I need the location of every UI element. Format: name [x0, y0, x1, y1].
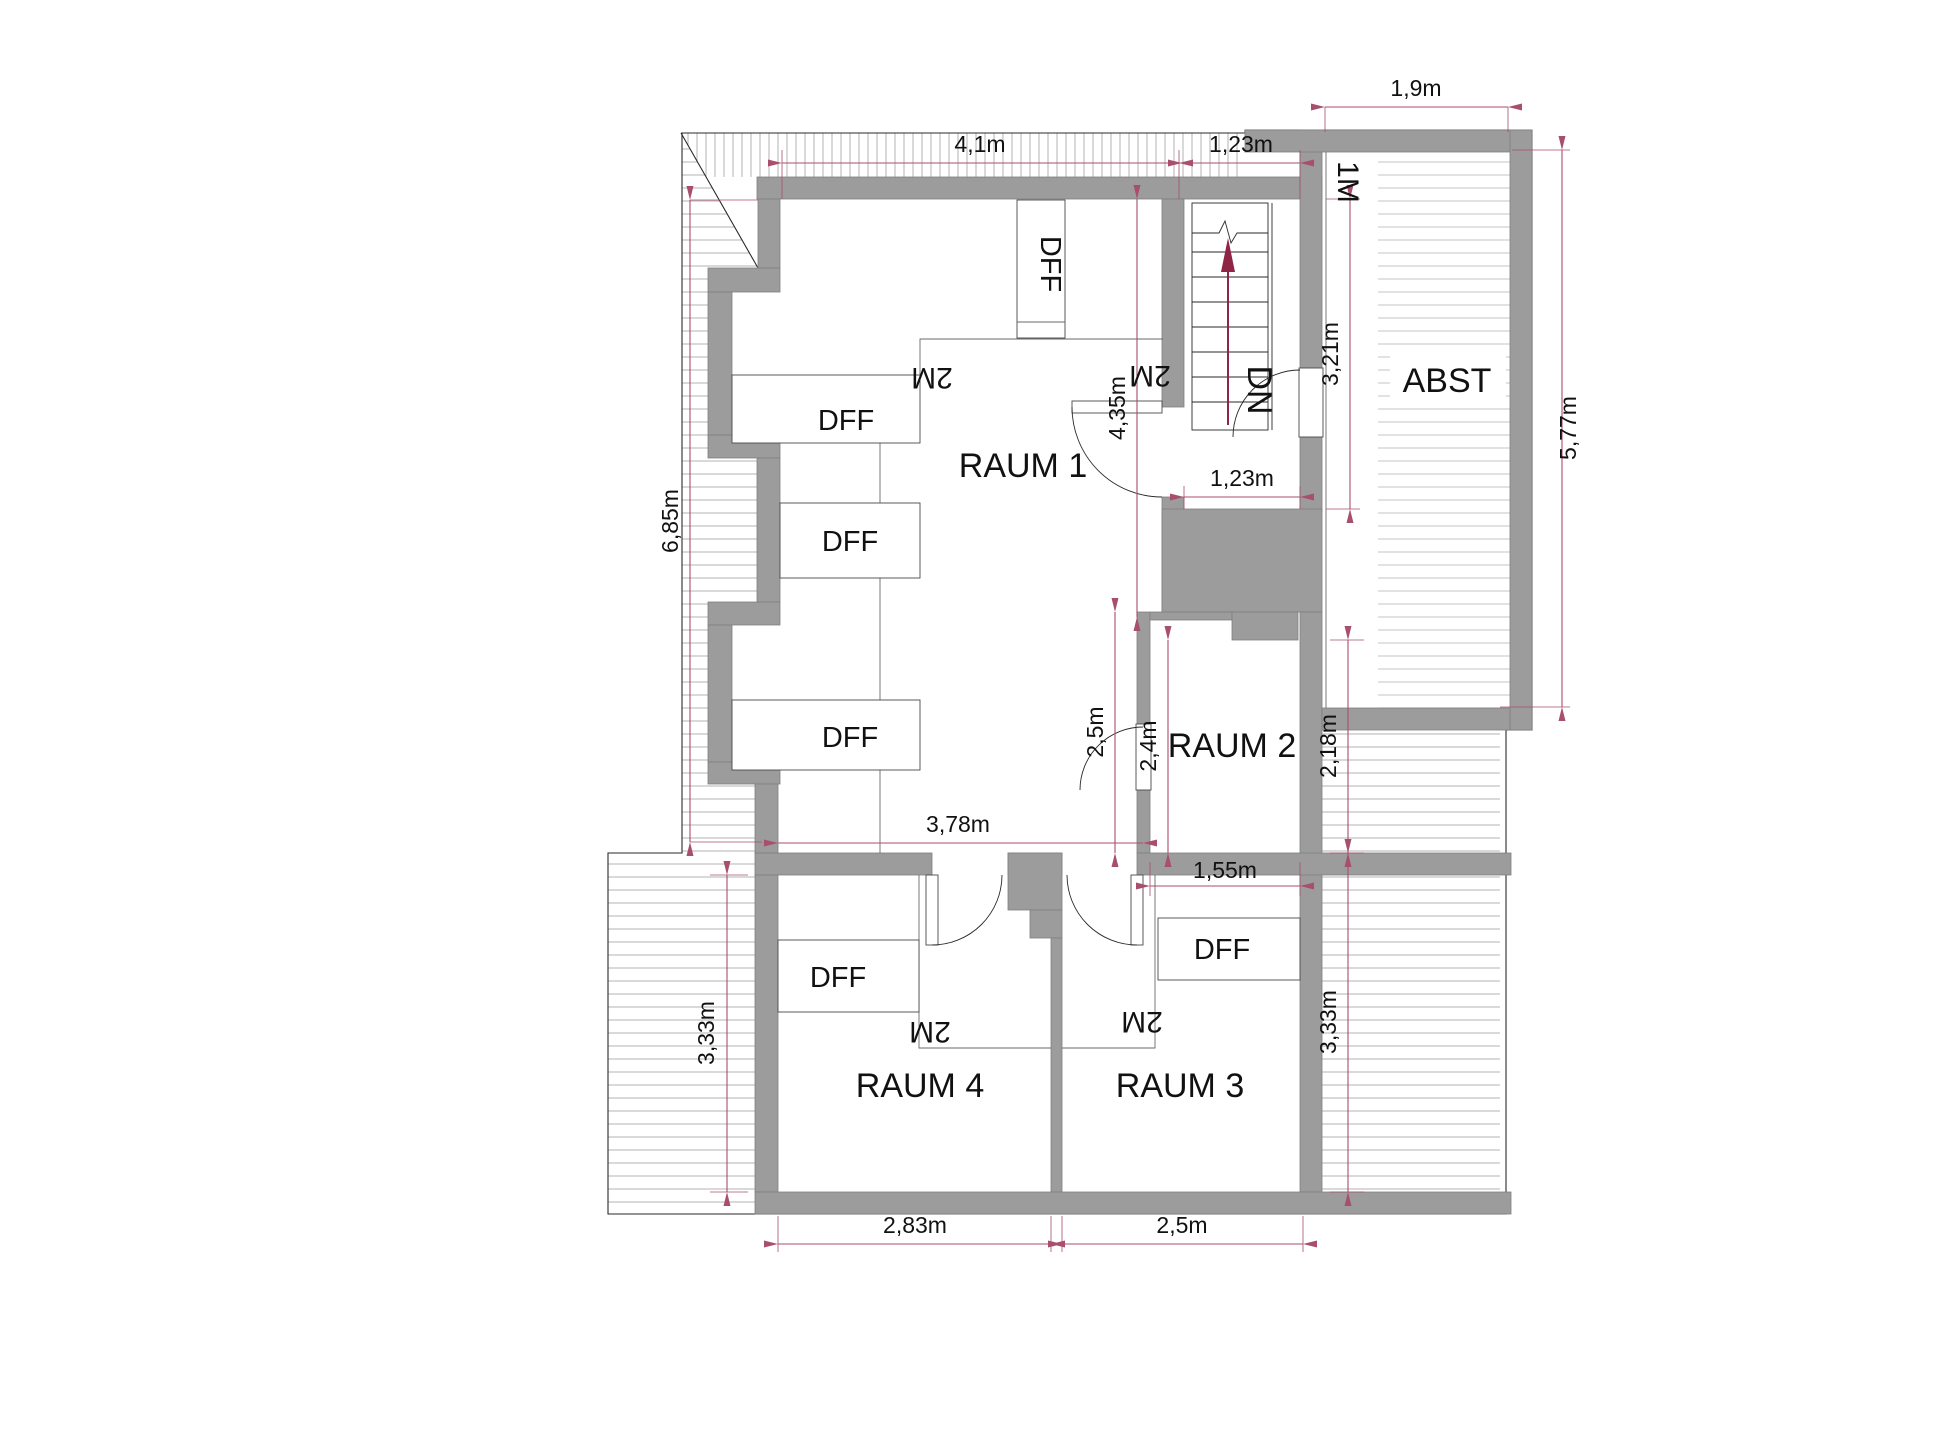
room-label-raum3: RAUM 3 — [1116, 1067, 1244, 1105]
window-label-raum3: DFF — [1194, 934, 1250, 966]
dim-text-raum1-width: 3,78m — [926, 811, 990, 837]
stair-label-dn: DN — [1240, 365, 1278, 414]
dim-text-top-width: 4,1m — [954, 131, 1005, 157]
wall-left-step3 — [708, 602, 780, 625]
height-label-2m-raum3: 2M — [1121, 1005, 1163, 1038]
dim-text-left-height: 6,85m — [657, 489, 683, 553]
door-raum4-arc — [932, 875, 1002, 945]
height-label-1m: 1M — [1331, 161, 1364, 203]
window-label-top: DFF — [1034, 236, 1066, 292]
wall-abst-right — [1510, 130, 1532, 730]
window-label-raum4: DFF — [810, 962, 866, 994]
dim-text-raum2-width: 1,55m — [1193, 857, 1257, 883]
room-label-raum2: RAUM 2 — [1168, 727, 1296, 765]
door-raum4-leaf — [926, 875, 938, 945]
wall-left-mid — [757, 458, 780, 602]
wall-abst-top — [1245, 130, 1532, 152]
door-raum3-leaf — [1131, 875, 1143, 945]
roof-hatch-right — [1322, 730, 1500, 1192]
window-label-left-2: DFF — [822, 526, 878, 558]
dim-text-raum4-width: 2,83m — [883, 1212, 947, 1238]
height-label-2m-raum1-right: 2M — [1129, 359, 1171, 392]
wall-divider-r3-r4 — [1051, 938, 1062, 1192]
dim-text-raum3-width: 2,5m — [1156, 1212, 1207, 1238]
wall-center-stub — [1030, 910, 1062, 938]
floorplan-svg: 4,1m 1,23m 1,9m 5,77m 3,21m 4,35m 1,23m … — [0, 0, 1936, 1452]
wall-mass-landing — [1162, 509, 1322, 612]
wall-raum2-left-upper — [1137, 612, 1150, 724]
room-label-raum1: RAUM 1 — [959, 447, 1087, 485]
wall-left-upper — [758, 199, 780, 268]
dim-text-abst-width: 1,9m — [1390, 75, 1441, 101]
room-label-raum4: RAUM 4 — [856, 1067, 984, 1105]
dim-text-landing-width: 1,23m — [1210, 465, 1274, 491]
wall-left-step1 — [708, 268, 780, 292]
roof-hatch-left-lower — [608, 853, 755, 1214]
wall-bottom — [755, 1192, 1511, 1214]
dim-text-roof-right-upper: 2,18m — [1315, 714, 1341, 778]
dim-text-stair-height: 3,21m — [1317, 322, 1343, 386]
stair-direction-arrow-head — [1221, 238, 1235, 272]
height-label-2m-raum4: 2M — [909, 1015, 951, 1048]
dim-text-roof-left-lower: 3,33m — [693, 1001, 719, 1065]
door-raum3-arc — [1067, 875, 1137, 945]
dim-text-abst-height: 5,77m — [1555, 396, 1581, 460]
wall-stair-right-lower — [1300, 435, 1322, 512]
wall-top — [757, 177, 1322, 199]
wall-raum2-step — [1232, 612, 1298, 640]
stair-break-line — [1192, 221, 1268, 243]
height-label-2m-raum1-left: 2M — [911, 361, 953, 394]
wall-dormer2 — [708, 625, 732, 762]
wall-abst-bottom — [1322, 708, 1510, 730]
wall-raum2-top-thin — [1150, 612, 1232, 620]
wall-dormer1 — [708, 292, 732, 435]
wall-center-chunk — [1008, 853, 1062, 910]
wall-middle-a — [755, 853, 932, 875]
dim-text-raum2-height: 2,4m — [1135, 720, 1161, 771]
abst-floor-planks — [1378, 152, 1510, 708]
wall-left-lower — [755, 784, 778, 853]
floorplan-canvas: 4,1m 1,23m 1,9m 5,77m 3,21m 4,35m 1,23m … — [0, 0, 1936, 1452]
room-label-abst: ABST — [1403, 362, 1492, 400]
window-label-left-1: DFF — [818, 405, 874, 437]
wall-left-raum4 — [755, 875, 778, 1192]
dim-text-raum1-height: 4,35m — [1104, 376, 1130, 440]
wall-right-column — [1300, 612, 1322, 1192]
dim-text-alcove-height: 2,5m — [1082, 706, 1108, 757]
dim-text-roof-right-lower: 3,33m — [1315, 990, 1341, 1054]
window-label-left-3: DFF — [822, 722, 878, 754]
dim-text-stair-width-top: 1,23m — [1209, 131, 1273, 157]
